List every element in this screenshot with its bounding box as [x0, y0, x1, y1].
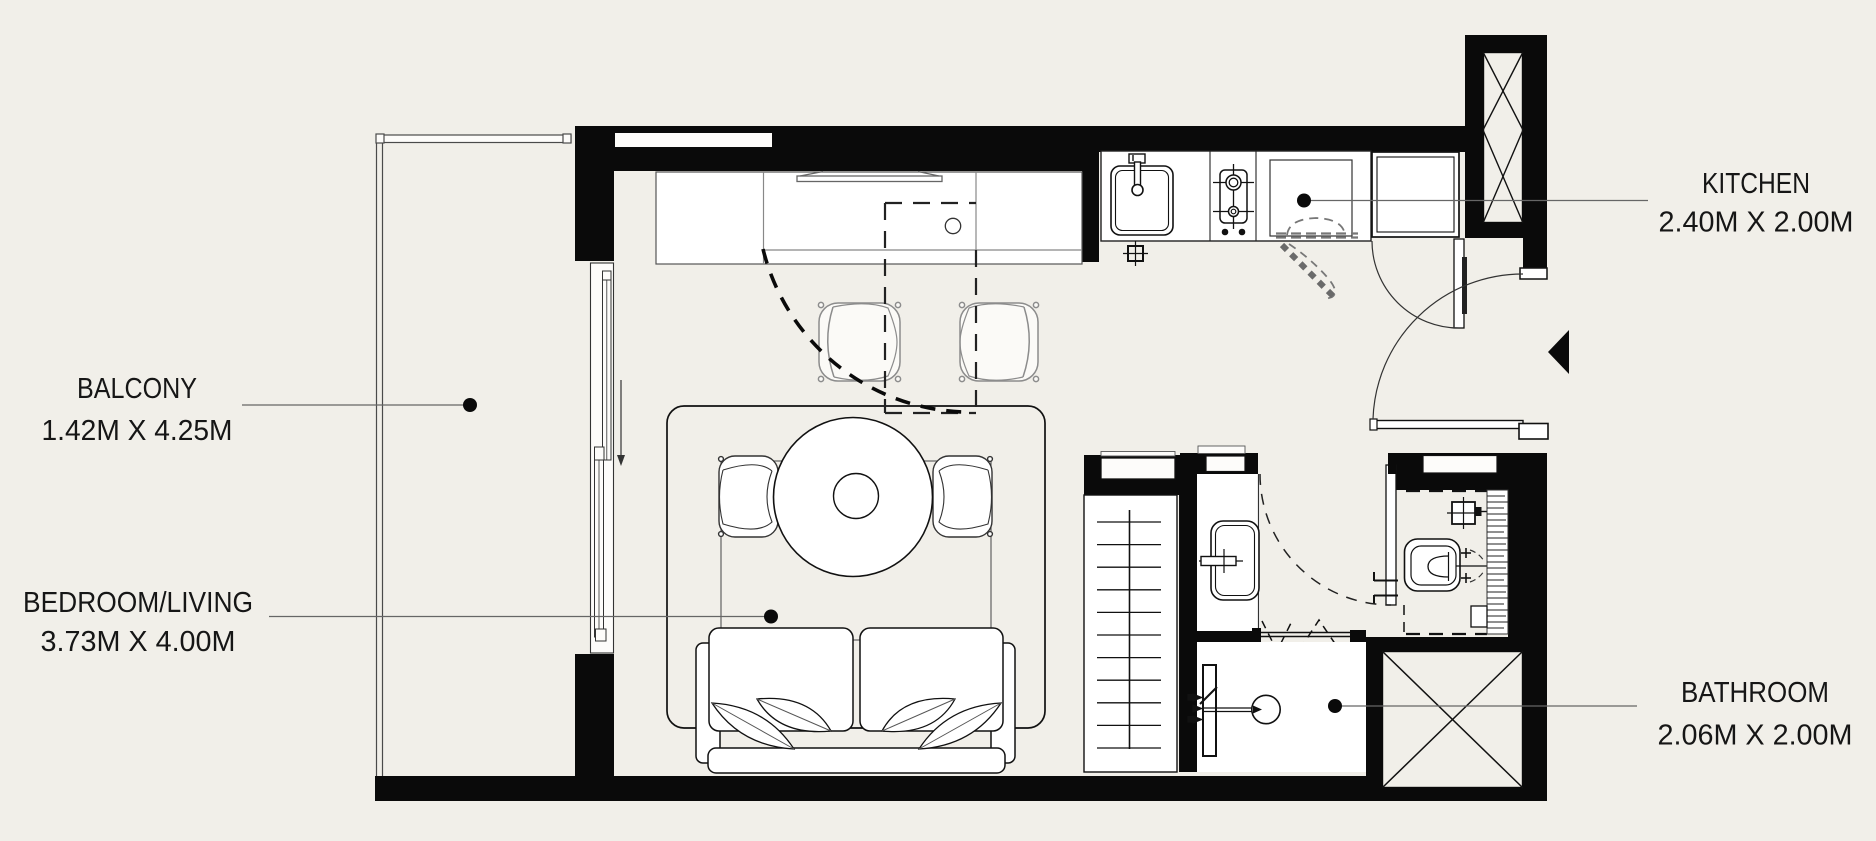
svg-text:1.42M X 4.25M: 1.42M X 4.25M [42, 415, 233, 447]
svg-text:KITCHEN: KITCHEN [1702, 168, 1810, 200]
svg-text:2.06M X 2.00M: 2.06M X 2.00M [1658, 720, 1853, 752]
svg-text:BEDROOM/LIVING: BEDROOM/LIVING [23, 587, 253, 619]
svg-text:2.40M X 2.00M: 2.40M X 2.00M [1659, 207, 1854, 239]
svg-text:3.73M X 4.00M: 3.73M X 4.00M [41, 626, 236, 658]
svg-text:BALCONY: BALCONY [77, 373, 197, 405]
svg-text:BATHROOM: BATHROOM [1681, 677, 1829, 709]
